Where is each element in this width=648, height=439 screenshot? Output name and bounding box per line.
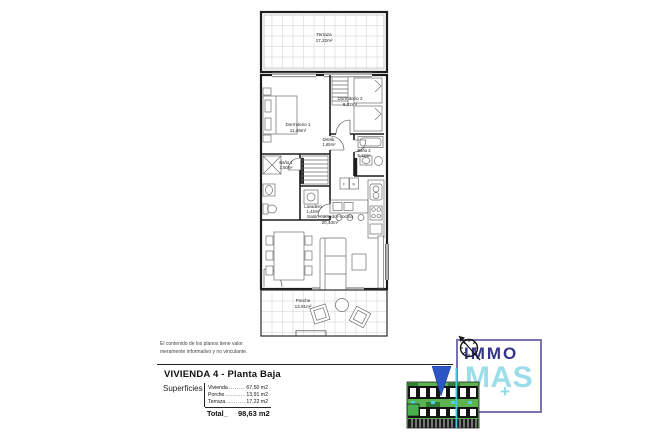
superficies-table: Vivienda .............. 67,50 m2 Porche … <box>208 385 268 405</box>
porch-area <box>261 290 387 336</box>
plan-sheet: F N <box>0 0 648 439</box>
site-plan-thumbnail <box>406 366 480 432</box>
superficies-row-terraza: Terraza .............. 17,22 m2 <box>208 399 268 406</box>
room-label-porche: Porche 13,91m² <box>295 298 312 309</box>
room-label-dormitorio2: Dormitorio 2 8,32m² <box>337 96 362 107</box>
superficies-vertical-rule <box>204 383 205 407</box>
logo-plus-glyph: + <box>500 382 510 402</box>
dotted-leader: .............. <box>225 392 245 399</box>
room-label-dormitorio1: Dormitorio 1 11,46m² <box>285 122 310 133</box>
disclaimer-text: El contenido de los planos tiene valor m… <box>160 341 247 356</box>
superficies-row-porche: Porche .............. 13,91 m2 <box>208 392 268 399</box>
total-label: Total_ <box>207 409 228 418</box>
total-value: 98,63 m2 <box>238 409 270 418</box>
room-label-distribuidor: Distrib. 1,65m² <box>322 137 335 148</box>
room-label-terraza: Terraza 17,22m² <box>316 32 333 43</box>
room-label-bano1: Baño 1 3,50m² <box>279 160 292 171</box>
dotted-leader: .............. <box>229 385 246 392</box>
compass-north-icon <box>452 329 488 365</box>
room-label-lavadero: Lavadero 1,43m² <box>304 204 321 215</box>
superficies-label: Superficies <box>163 384 203 393</box>
superficies-row-vivienda: Vivienda .............. 67,50 m2 <box>208 385 268 392</box>
room-label-bano2: Baño 2 5,12m² <box>357 148 370 159</box>
kitchen-unit-f-label: F <box>343 183 345 187</box>
bedroom1-furniture <box>263 88 297 142</box>
plan-title: VIVIENDA 4 - Planta Baja <box>164 369 281 380</box>
room-label-salon: Salón-comedor-cocina 20,40m² <box>307 214 353 225</box>
dotted-leader: .............. <box>226 399 245 406</box>
floor-plan: F N <box>256 8 392 338</box>
